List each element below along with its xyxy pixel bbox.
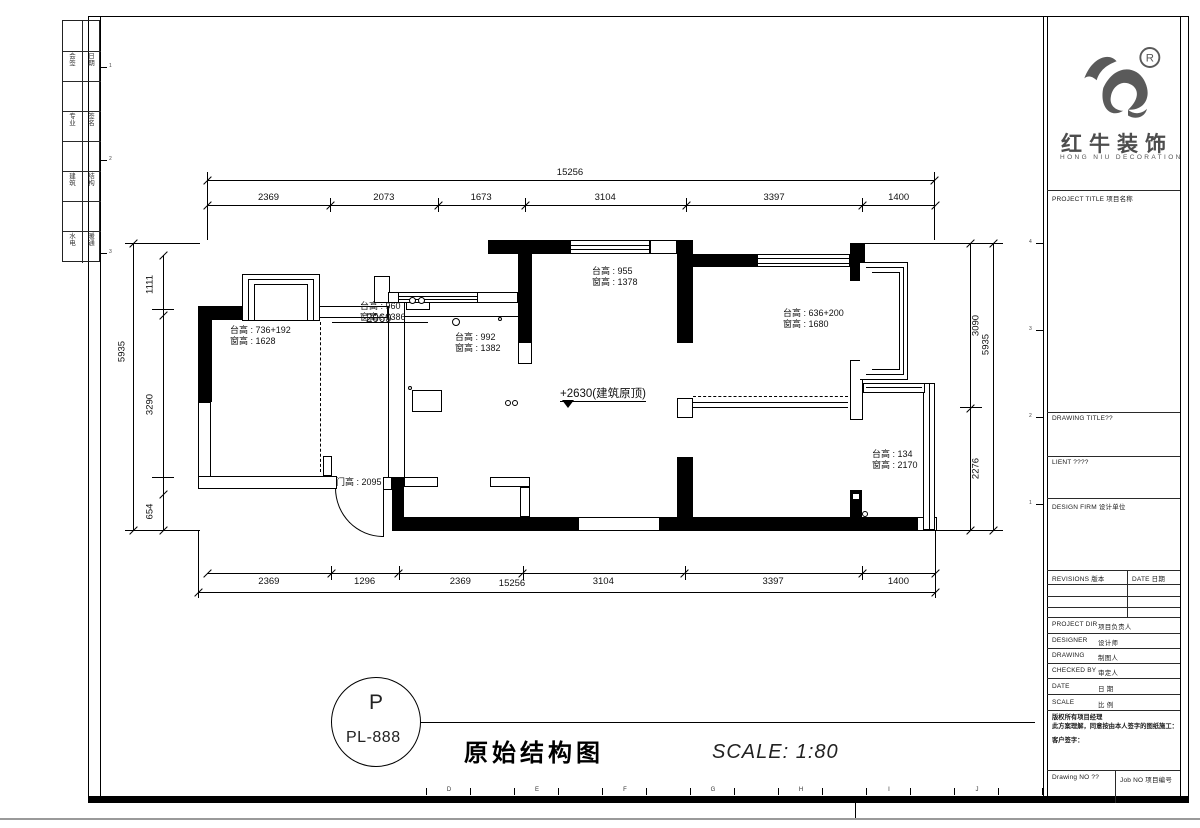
ruler-tick bbox=[1042, 788, 1043, 795]
ruler-tick bbox=[734, 788, 735, 795]
edge-number: 1 bbox=[109, 63, 112, 69]
edge-tick bbox=[1036, 417, 1043, 418]
ruler-letter: I bbox=[884, 787, 894, 793]
ruler-tick bbox=[954, 788, 955, 795]
edge-number: 3 bbox=[1029, 326, 1032, 332]
ruler-tick bbox=[778, 788, 779, 795]
ruler-tick bbox=[998, 788, 999, 795]
ruler-tick bbox=[910, 788, 911, 795]
edge-tick bbox=[1036, 504, 1043, 505]
ruler-letter: H bbox=[796, 787, 806, 793]
edge-tick bbox=[1036, 243, 1043, 244]
frame-ruler: DEFGHIJ4321123 bbox=[0, 0, 1200, 828]
edge-number: 2 bbox=[1029, 413, 1032, 419]
ruler-tick bbox=[558, 788, 559, 795]
ruler-tick bbox=[470, 788, 471, 795]
ruler-tick bbox=[514, 788, 515, 795]
ruler-tick bbox=[866, 788, 867, 795]
edge-number: 4 bbox=[1029, 239, 1032, 245]
edge-number: 2 bbox=[109, 156, 112, 162]
edge-number: 3 bbox=[109, 249, 112, 255]
ruler-letter: J bbox=[972, 787, 982, 793]
ruler-tick bbox=[646, 788, 647, 795]
ruler-tick bbox=[822, 788, 823, 795]
ruler-tick bbox=[602, 788, 603, 795]
edge-number: 1 bbox=[1029, 500, 1032, 506]
ruler-letter: E bbox=[532, 787, 542, 793]
edge-tick bbox=[100, 253, 107, 254]
edge-tick bbox=[1036, 330, 1043, 331]
edge-tick bbox=[100, 67, 107, 68]
ruler-tick bbox=[690, 788, 691, 795]
ruler-letter: F bbox=[620, 787, 630, 793]
ruler-tick bbox=[426, 788, 427, 795]
edge-tick bbox=[100, 160, 107, 161]
ruler-letter: D bbox=[444, 787, 454, 793]
ruler-letter: G bbox=[708, 787, 718, 793]
